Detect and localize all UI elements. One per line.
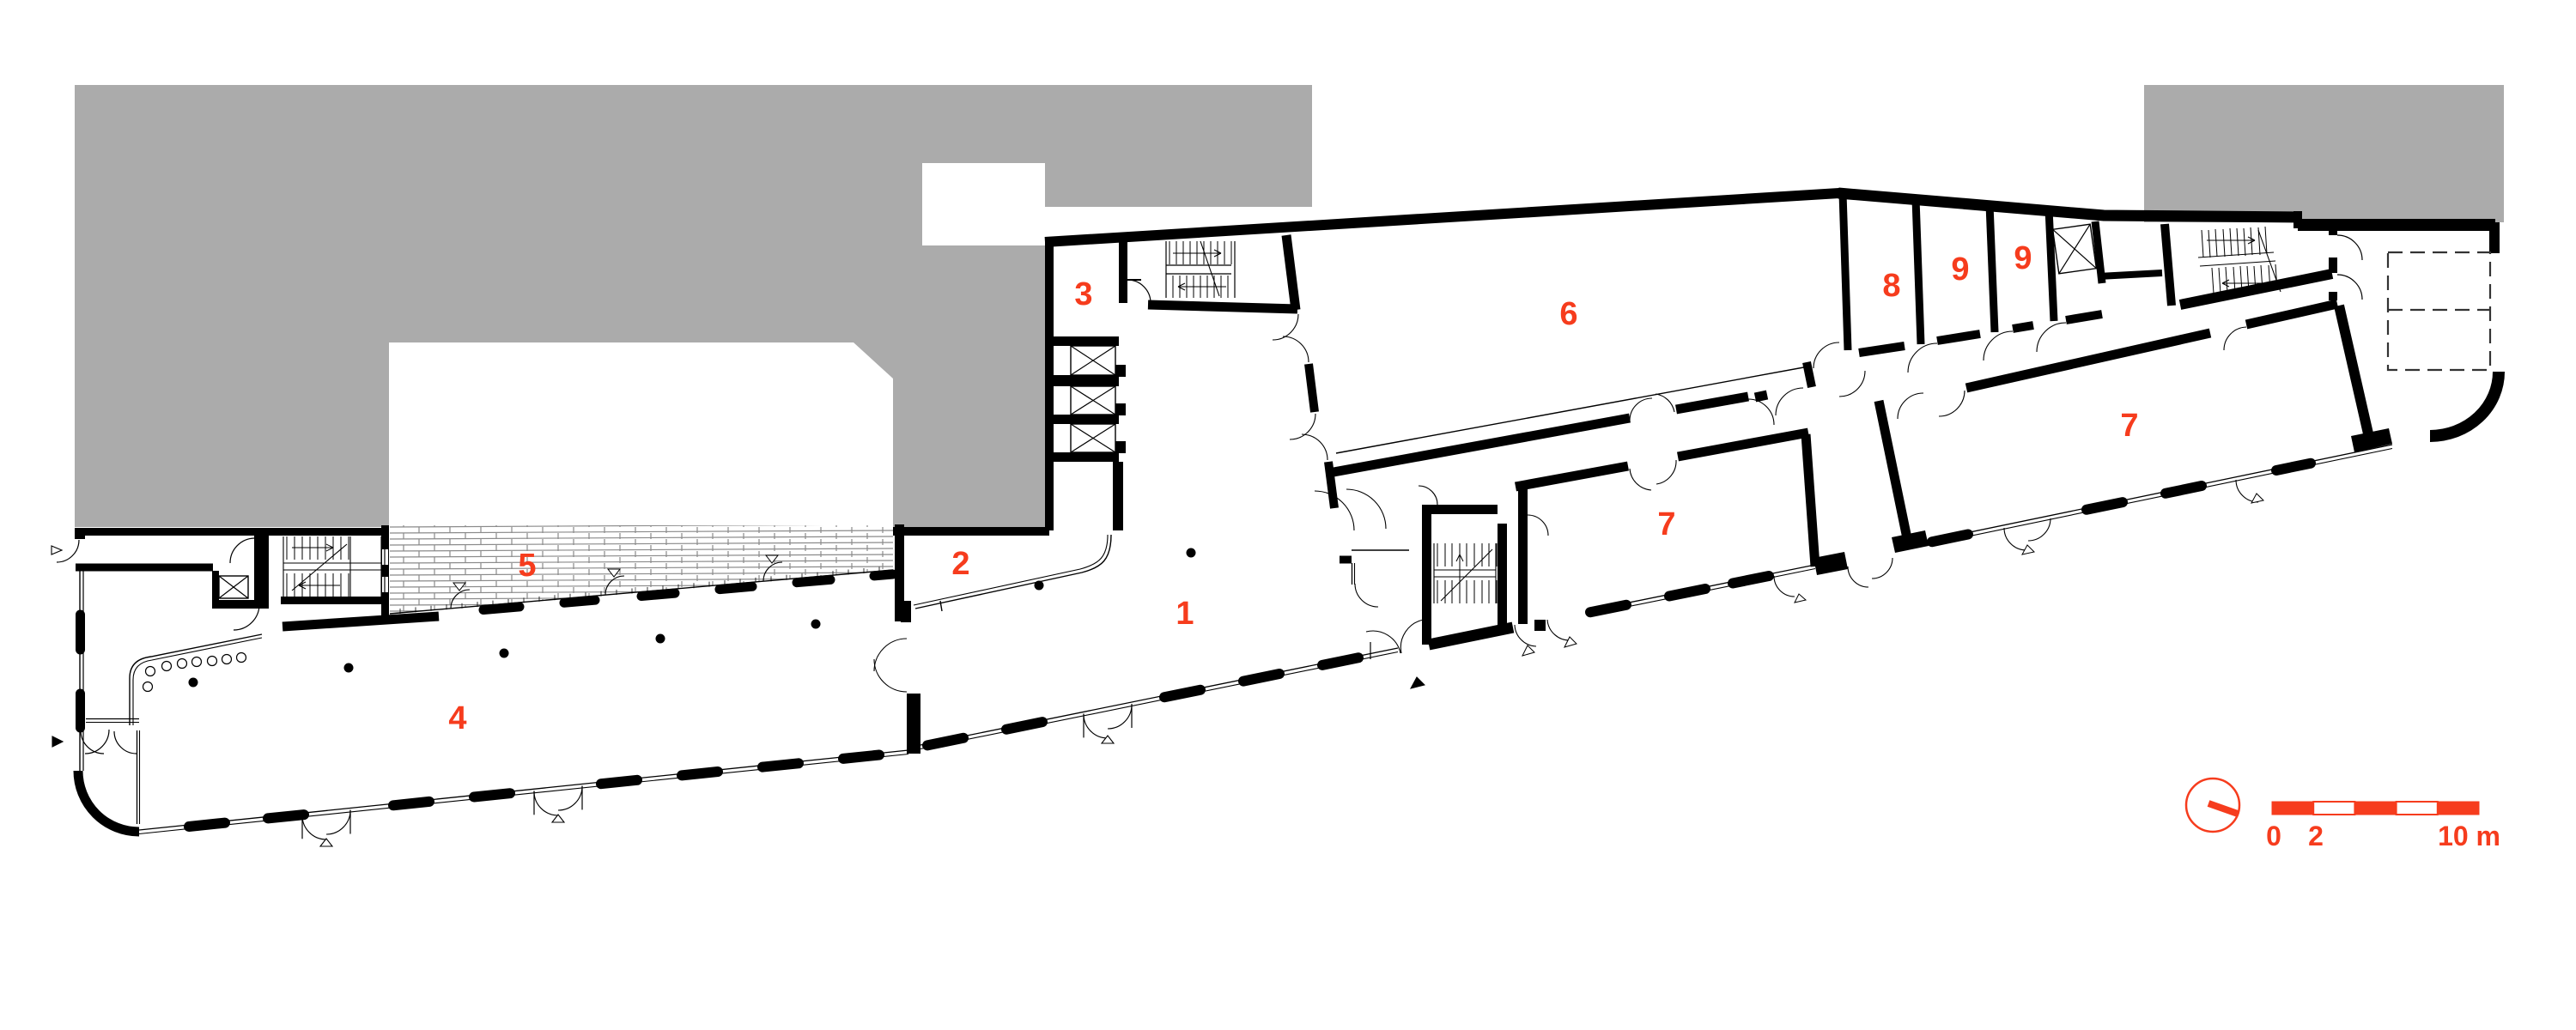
- svg-text:7: 7: [2120, 408, 2138, 444]
- svg-text:8: 8: [1882, 268, 1900, 304]
- svg-text:9: 9: [2014, 240, 2032, 276]
- svg-text:5: 5: [518, 548, 536, 584]
- svg-text:7: 7: [1657, 506, 1675, 542]
- svg-text:2: 2: [2308, 821, 2324, 851]
- svg-text:3: 3: [1074, 276, 1092, 312]
- svg-text:2: 2: [951, 546, 969, 582]
- svg-text:10 m: 10 m: [2438, 821, 2500, 851]
- svg-text:0: 0: [2266, 821, 2281, 851]
- svg-text:6: 6: [1559, 296, 1577, 332]
- svg-text:1: 1: [1176, 596, 1194, 632]
- svg-text:4: 4: [448, 700, 466, 736]
- svg-text:9: 9: [1951, 251, 1969, 288]
